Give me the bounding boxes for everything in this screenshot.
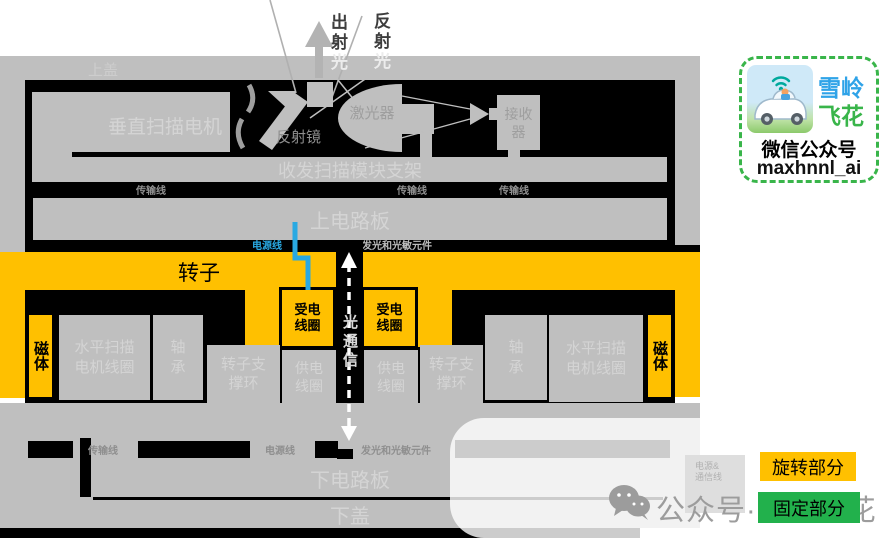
receiving-coil-right-l1: 受电 <box>376 302 402 318</box>
wire-bar-3 <box>315 441 338 458</box>
laser-label: 激光器 <box>349 102 394 123</box>
supply-coil-left: 供电 线圈 <box>282 350 336 403</box>
support-right-l2: 撑环 <box>436 374 466 393</box>
h-coil-left-l2: 电机线圈 <box>74 358 134 378</box>
brand-account-type-wrap: 微信公众号 <box>742 137 876 159</box>
receiving-coil-right: 受电 线圈 <box>361 287 418 349</box>
rotor-label: 转子 <box>178 257 220 287</box>
brand-account-id: maxhnnl_ai <box>757 158 862 180</box>
power-line-label-top: 电源线 <box>252 241 282 252</box>
bearing-right: 轴 承 <box>485 315 547 400</box>
rotor-left-wall <box>0 252 25 398</box>
supply-coil-right: 供电 线圈 <box>364 350 418 403</box>
supply-left-l1: 供电 <box>295 359 323 377</box>
h-coil-left-l1: 水平扫描 <box>74 338 134 358</box>
rotor-right-wall <box>675 252 700 397</box>
magnet-right-label: 磁体 <box>649 341 670 371</box>
brand-avatar <box>747 65 813 133</box>
support-left-l2: 撑环 <box>228 374 258 393</box>
supply-right-l1: 供电 <box>377 359 405 377</box>
support-left-l1: 转子支 <box>221 355 266 374</box>
bottom-cover-label-wrap: 下盖 <box>270 503 430 525</box>
emit-sense-label-top: 发光和光敏元件 <box>362 241 432 252</box>
upper-pcb: 上电路板 <box>33 198 667 240</box>
legend-fixed-label: 固定部分 <box>773 495 845 521</box>
power-line-label-bottom: 电源线 <box>265 446 295 457</box>
receiving-coil-left-l2: 线圈 <box>294 318 320 334</box>
left-shell-wall <box>0 80 25 252</box>
magnet-left: 磁体 <box>26 312 55 400</box>
supply-left-l2: 线圈 <box>295 377 323 395</box>
rotor-arm-left <box>245 290 281 347</box>
supply-right-l2: 线圈 <box>377 377 405 395</box>
vertical-scan-motor-label: 垂直扫描电机 <box>108 112 222 139</box>
legend-fixed: 固定部分 <box>758 492 860 523</box>
rotor-arm-right <box>418 290 452 347</box>
reflected-light-light-part: 光 <box>371 52 390 72</box>
brand-account-id-wrap: maxhnnl_ai <box>742 158 876 180</box>
scan-module-bracket-label: 收发扫描模块支架 <box>278 157 422 183</box>
top-cover-label: 上盖 <box>88 59 118 80</box>
receiver-label-l2: 器 <box>512 123 526 141</box>
legend-rotating-label: 旋转部分 <box>772 454 844 480</box>
receiving-coil-left-l1: 受电 <box>294 302 320 318</box>
transmission-line-label-top-1: 传输线 <box>136 186 166 197</box>
brand-name-line2: 飞花 <box>818 97 864 131</box>
receiving-coil-left: 受电 线圈 <box>279 287 336 349</box>
exit-light-light-part: 光 <box>328 53 347 73</box>
receiver-label-l1: 接收 <box>505 105 533 123</box>
h-scan-motor-coil-right: 水平扫描 电机线圈 <box>549 315 643 402</box>
magnet-right: 磁体 <box>645 312 674 400</box>
wire-bar-2 <box>138 441 250 458</box>
reflected-light-label: 反射光 <box>368 12 393 72</box>
bearing-left-l1: 轴 <box>170 338 185 358</box>
power-comm-l1: 电源& <box>695 461 745 472</box>
lower-pcb-label-wrap: 下电路板 <box>270 466 430 490</box>
h-coil-right-l1: 水平扫描 <box>566 339 626 359</box>
right-shell-wall <box>675 80 700 245</box>
laser-label-wrap: 激光器 <box>340 103 404 121</box>
wire-bar-1 <box>28 441 73 458</box>
bottom-cover-label: 下盖 <box>330 500 370 529</box>
h-scan-motor-coil-left: 水平扫描 电机线圈 <box>59 315 150 400</box>
bearing-right-l1: 轴 <box>508 338 523 358</box>
emit-sense-label-bottom: 发光和光敏元件 <box>361 446 431 457</box>
bearing-left: 轴 承 <box>153 315 203 400</box>
mirror-label: 反射镜 <box>276 126 321 147</box>
rotor-support-ring-left: 转子支 撑环 <box>207 345 280 403</box>
optical-comm-label: 光通信 <box>339 314 360 390</box>
rotor-support-ring-right: 转子支 撑环 <box>420 345 483 403</box>
bearing-right-l2: 承 <box>508 358 523 378</box>
scan-module-bracket: 收发扫描模块支架 <box>33 157 667 182</box>
support-right-l1: 转子支 <box>429 355 474 374</box>
wire-bar-step <box>337 449 353 459</box>
h-coil-right-l2: 电机线圈 <box>566 359 626 379</box>
magnet-left-label: 磁体 <box>30 341 51 371</box>
brand-card: 雪岭 飞花 微信公众号 maxhnnl_ai <box>739 56 879 183</box>
receiver-label-wrap: 接收 器 <box>497 95 540 150</box>
bearing-left-l2: 承 <box>170 358 185 378</box>
power-comm-l2: 通信线 <box>695 472 745 483</box>
lower-pcb-label: 下电路板 <box>310 464 390 493</box>
exit-light-label: 出射光 <box>325 13 350 73</box>
reflected-light-dark-part: 反射 <box>371 12 390 52</box>
transmission-line-label-top-3: 传输线 <box>499 186 529 197</box>
power-comm-cable-label: 电源& 通信线 <box>685 455 745 483</box>
receiving-coil-right-l2: 线圈 <box>376 318 402 334</box>
exit-light-dark-part: 出射 <box>328 13 347 53</box>
lidar-structure-diagram: 上盖 垂直扫描电机 收发扫描模块支架 传输线 传输线 传输线 上电路板 电源线 … <box>0 0 880 538</box>
transmission-line-label-top-2: 传输线 <box>397 186 427 197</box>
transmission-line-label-bottom: 传输线 <box>88 446 118 457</box>
upper-pcb-label: 上电路板 <box>310 205 390 234</box>
car-wifi-icon <box>747 65 813 133</box>
wechat-icon <box>608 484 652 522</box>
legend-rotating: 旋转部分 <box>760 452 856 481</box>
